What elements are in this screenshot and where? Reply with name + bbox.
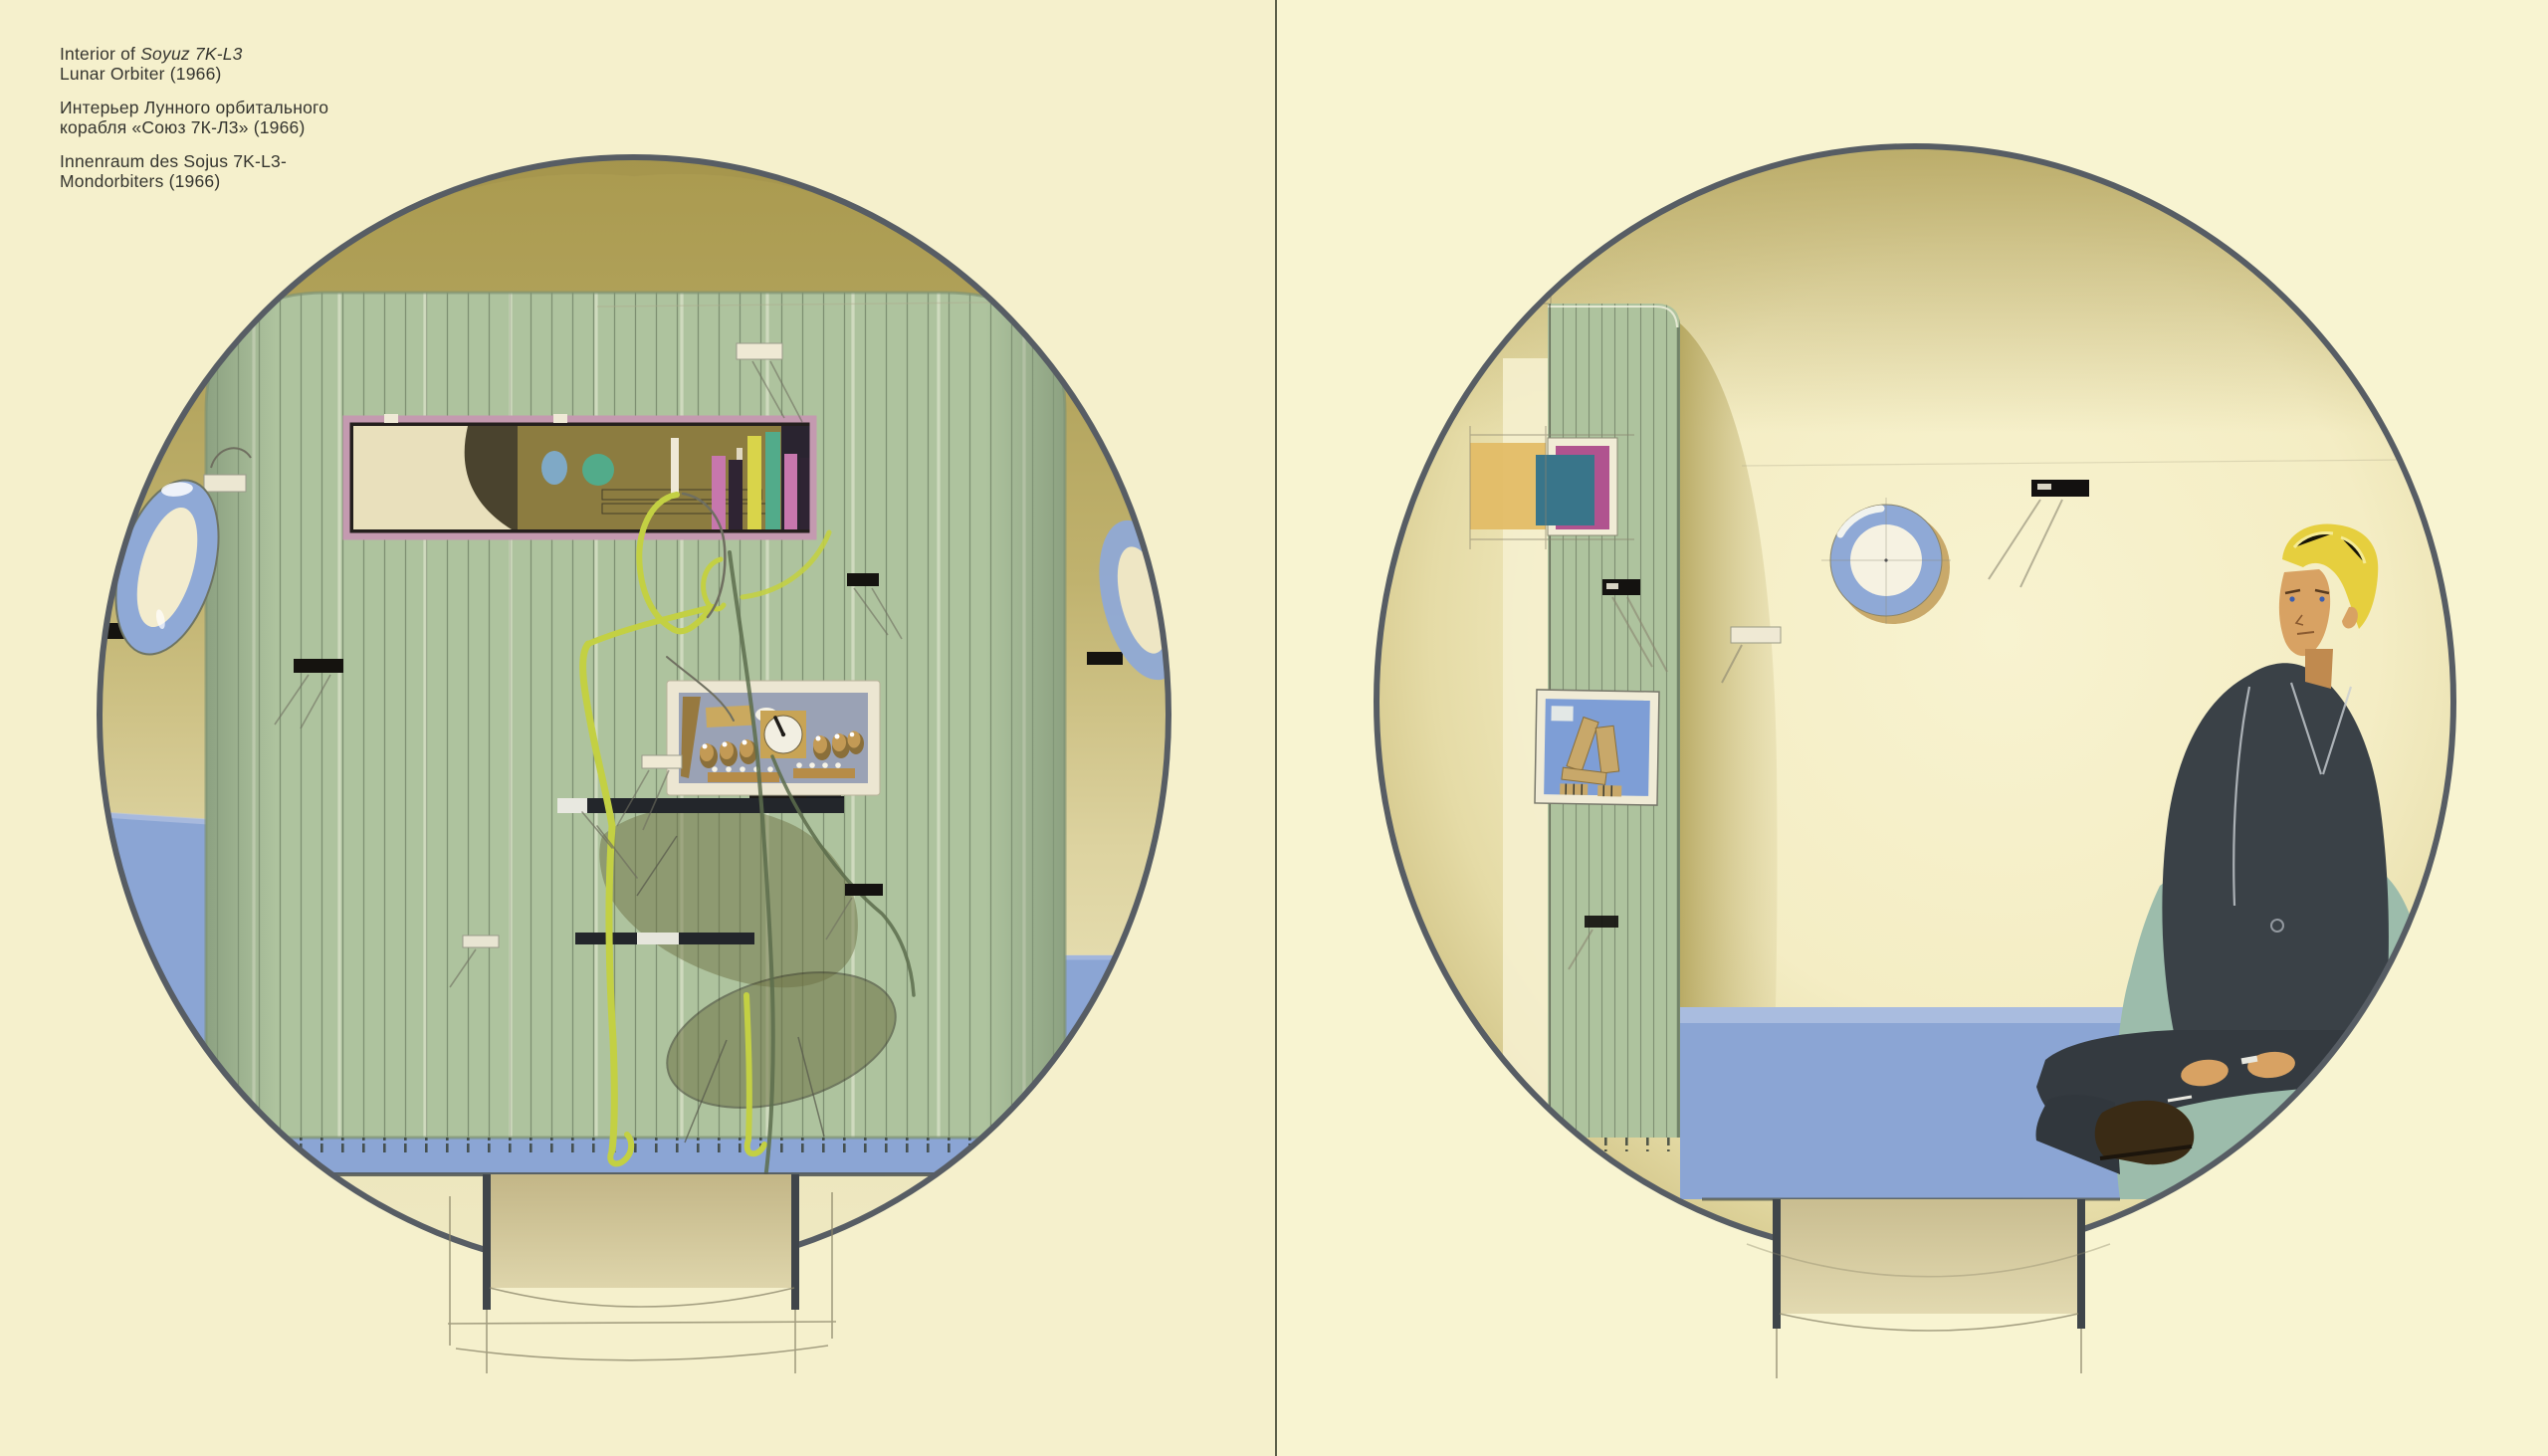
caption-russian: Интерьер Лунного орбитальногокорабля «Со… <box>60 98 398 137</box>
hatch-fill <box>1780 1199 2078 1314</box>
page-right <box>1277 0 2548 1456</box>
shelf-rail-cap <box>557 798 587 813</box>
hatch-wall-right <box>791 1174 799 1310</box>
caption-english-prefix: Interior of <box>60 44 140 64</box>
storage-cabinet <box>346 414 813 536</box>
hatch-wall-left <box>1773 1199 1781 1329</box>
capsule-interior-right <box>1324 144 2458 1257</box>
porthole-center-dot <box>1884 558 1887 561</box>
handle-black-right <box>1087 652 1123 665</box>
bar-plum <box>729 460 743 529</box>
handle-white <box>1731 627 1781 643</box>
boot <box>2095 1101 2195 1164</box>
bar-pink-2 <box>784 454 797 529</box>
caption-english-line2: Lunar Orbiter (1966) <box>60 64 222 84</box>
cabinet-handle-white <box>671 438 679 496</box>
hatch-wall-left <box>483 1174 491 1310</box>
book-spread: Interior of Soyuz 7K-L3Lunar Orbiter (19… <box>0 0 2548 1456</box>
caption-english-title: Soyuz 7K-L3 <box>140 44 242 64</box>
floor-highlight <box>1680 1007 2128 1023</box>
frame-tick-2 <box>553 414 567 423</box>
bar-green <box>765 432 780 529</box>
handle-black-panel <box>294 659 343 673</box>
panel-card <box>1551 706 1573 721</box>
illustration-right-cutaway-cosmonaut <box>1324 129 2548 1423</box>
hatch-wall-right <box>2077 1199 2085 1329</box>
page-left: Interior of Soyuz 7K-L3Lunar Orbiter (19… <box>0 0 1275 1456</box>
bar-pink <box>712 456 726 529</box>
handle-slit <box>2037 484 2051 490</box>
panel-right-shade <box>985 293 1065 1138</box>
bar-yellow <box>747 436 761 529</box>
frame-tick-1 <box>384 414 398 423</box>
handle-white-low <box>463 936 499 947</box>
console-label-plate <box>706 706 752 728</box>
shelf-rail-lower-cap <box>637 933 679 944</box>
shelf-rail-upper <box>557 798 844 813</box>
handle-black-low <box>845 884 883 896</box>
caption-english: Interior of Soyuz 7K-L3Lunar Orbiter (19… <box>60 44 398 84</box>
caption-russian-line1: Интерьер Лунного орбитального <box>60 98 328 117</box>
hatch-tunnel <box>1747 1199 2110 1378</box>
panel-left-shade <box>206 293 276 1138</box>
handle-white-mid <box>642 755 682 768</box>
handle-white-left <box>204 475 246 492</box>
neck <box>2305 649 2333 689</box>
handle-black-mid <box>847 573 879 586</box>
caption-russian-line2: корабля «Союз 7К-Л3» (1966) <box>60 117 306 137</box>
round-dial-green <box>582 454 614 486</box>
clock-hub <box>781 732 785 736</box>
handle-white-top <box>737 343 782 359</box>
instrument-panel <box>1535 690 1659 805</box>
panel-bottom-ticks <box>229 1138 1055 1152</box>
control-console <box>667 681 880 805</box>
amber-panel <box>1470 443 1546 529</box>
teal-panel <box>1536 455 1594 525</box>
column-bottom-ticks <box>1548 1138 1680 1151</box>
handle-black-low <box>1585 916 1618 928</box>
hatch-fill <box>490 1174 794 1288</box>
handle-slit-2 <box>1606 583 1618 589</box>
round-dial-blue <box>541 451 567 485</box>
hatch-tunnel <box>448 1174 836 1373</box>
illustration-left-cutaway-console <box>40 139 1214 1433</box>
